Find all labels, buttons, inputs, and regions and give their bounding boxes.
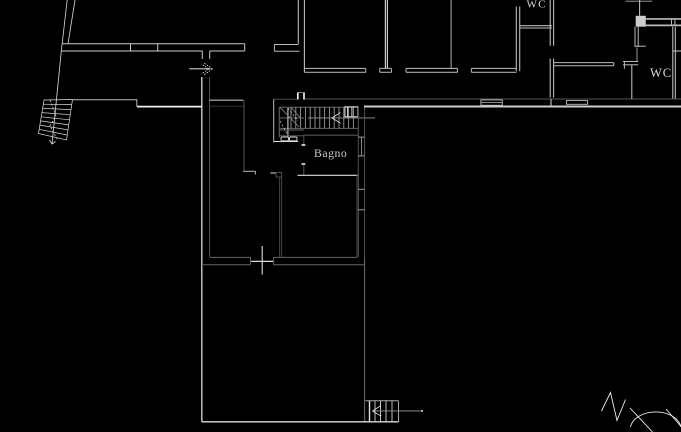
svg-text:WC: WC: [527, 0, 547, 10]
svg-text:WC: WC: [650, 66, 672, 80]
svg-text:Bagno: Bagno: [314, 146, 347, 160]
